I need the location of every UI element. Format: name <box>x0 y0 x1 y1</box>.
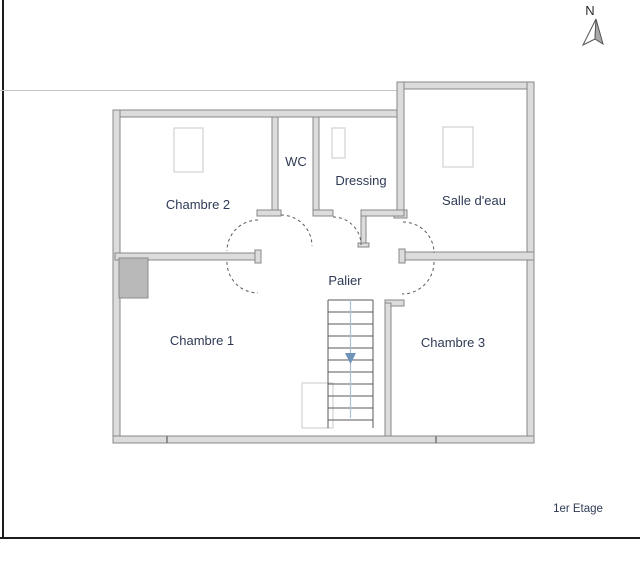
floor-caption: 1er Etage <box>553 503 603 515</box>
wall-bottom <box>113 436 534 443</box>
wall-salle-deau-left <box>397 82 404 210</box>
wall-stairwell <box>385 303 391 436</box>
room-label-salle-deau: Salle d'eau <box>442 193 506 208</box>
frame-faint-top-line <box>0 90 398 91</box>
chimney-block <box>119 258 148 298</box>
frame-bottom-border <box>0 537 640 539</box>
compass-north-label: N <box>585 3 594 18</box>
wall-corridor-stub <box>361 216 366 244</box>
wall-wc-dressing <box>313 117 319 210</box>
room-label-wc: WC <box>285 154 307 169</box>
compass-arrow-icon <box>595 19 603 44</box>
door-arc-chambre3 <box>402 262 434 294</box>
room-label-chambre2: Chambre 2 <box>166 197 230 212</box>
wall-top-salle-deau <box>397 82 534 89</box>
wall-middle-left-cap <box>255 250 261 263</box>
wall-middle-right <box>402 252 534 260</box>
fixture-chambre2 <box>174 128 203 172</box>
door-arc-salle-deau <box>403 222 434 253</box>
frame-left-border <box>2 0 4 539</box>
door-arc-chambre2 <box>227 220 258 251</box>
wall-middle-right-cap <box>399 249 405 263</box>
fixture-dressing <box>332 128 345 158</box>
wall-corridor-segment <box>361 210 404 216</box>
door-arc-wc <box>281 215 312 246</box>
floor-plan-page: N Chambre 2 WC Dressing Salle d'eau Pali… <box>0 0 640 573</box>
wall-chambre2-wc <box>272 117 278 210</box>
compass-arrow-icon <box>583 19 596 45</box>
wall-corridor-stub-cap <box>358 243 369 247</box>
fixture-salle-deau <box>443 127 473 167</box>
room-label-dressing: Dressing <box>335 173 386 188</box>
floor-plan: N Chambre 2 WC Dressing Salle d'eau Pali… <box>0 0 640 573</box>
wall-wc-door-jamb <box>313 210 333 216</box>
stair-down-arrow-icon <box>345 353 356 364</box>
room-label-palier: Palier <box>328 273 362 288</box>
wall-chambre2-door-jamb <box>257 210 281 216</box>
door-arc-dressing <box>333 217 361 245</box>
room-label-chambre1: Chambre 1 <box>170 333 234 348</box>
room-label-chambre3: Chambre 3 <box>421 335 485 350</box>
wall-top-main <box>113 110 404 117</box>
door-arc-chambre1 <box>227 262 258 293</box>
wall-right <box>527 82 534 443</box>
